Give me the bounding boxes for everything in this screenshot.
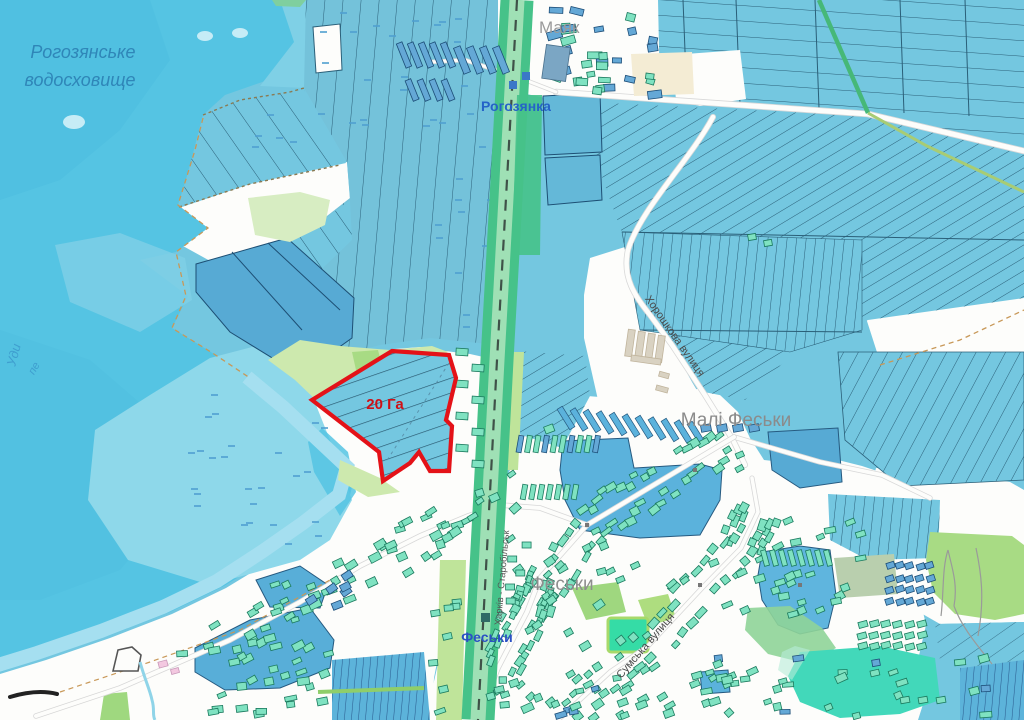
svg-text:Феськи: Феськи [461, 629, 513, 645]
svg-text:Феськи: Феськи [530, 574, 593, 595]
svg-text:Малі Феськи: Малі Феськи [681, 410, 792, 431]
svg-text:Маяк: Маяк [539, 18, 580, 37]
svg-text:водосховище: водосховище [24, 70, 135, 90]
svg-text:Рогозянка: Рогозянка [481, 98, 551, 114]
svg-text:Рогозянське: Рогозянське [30, 42, 135, 62]
svg-text:20 Га: 20 Га [366, 396, 404, 413]
